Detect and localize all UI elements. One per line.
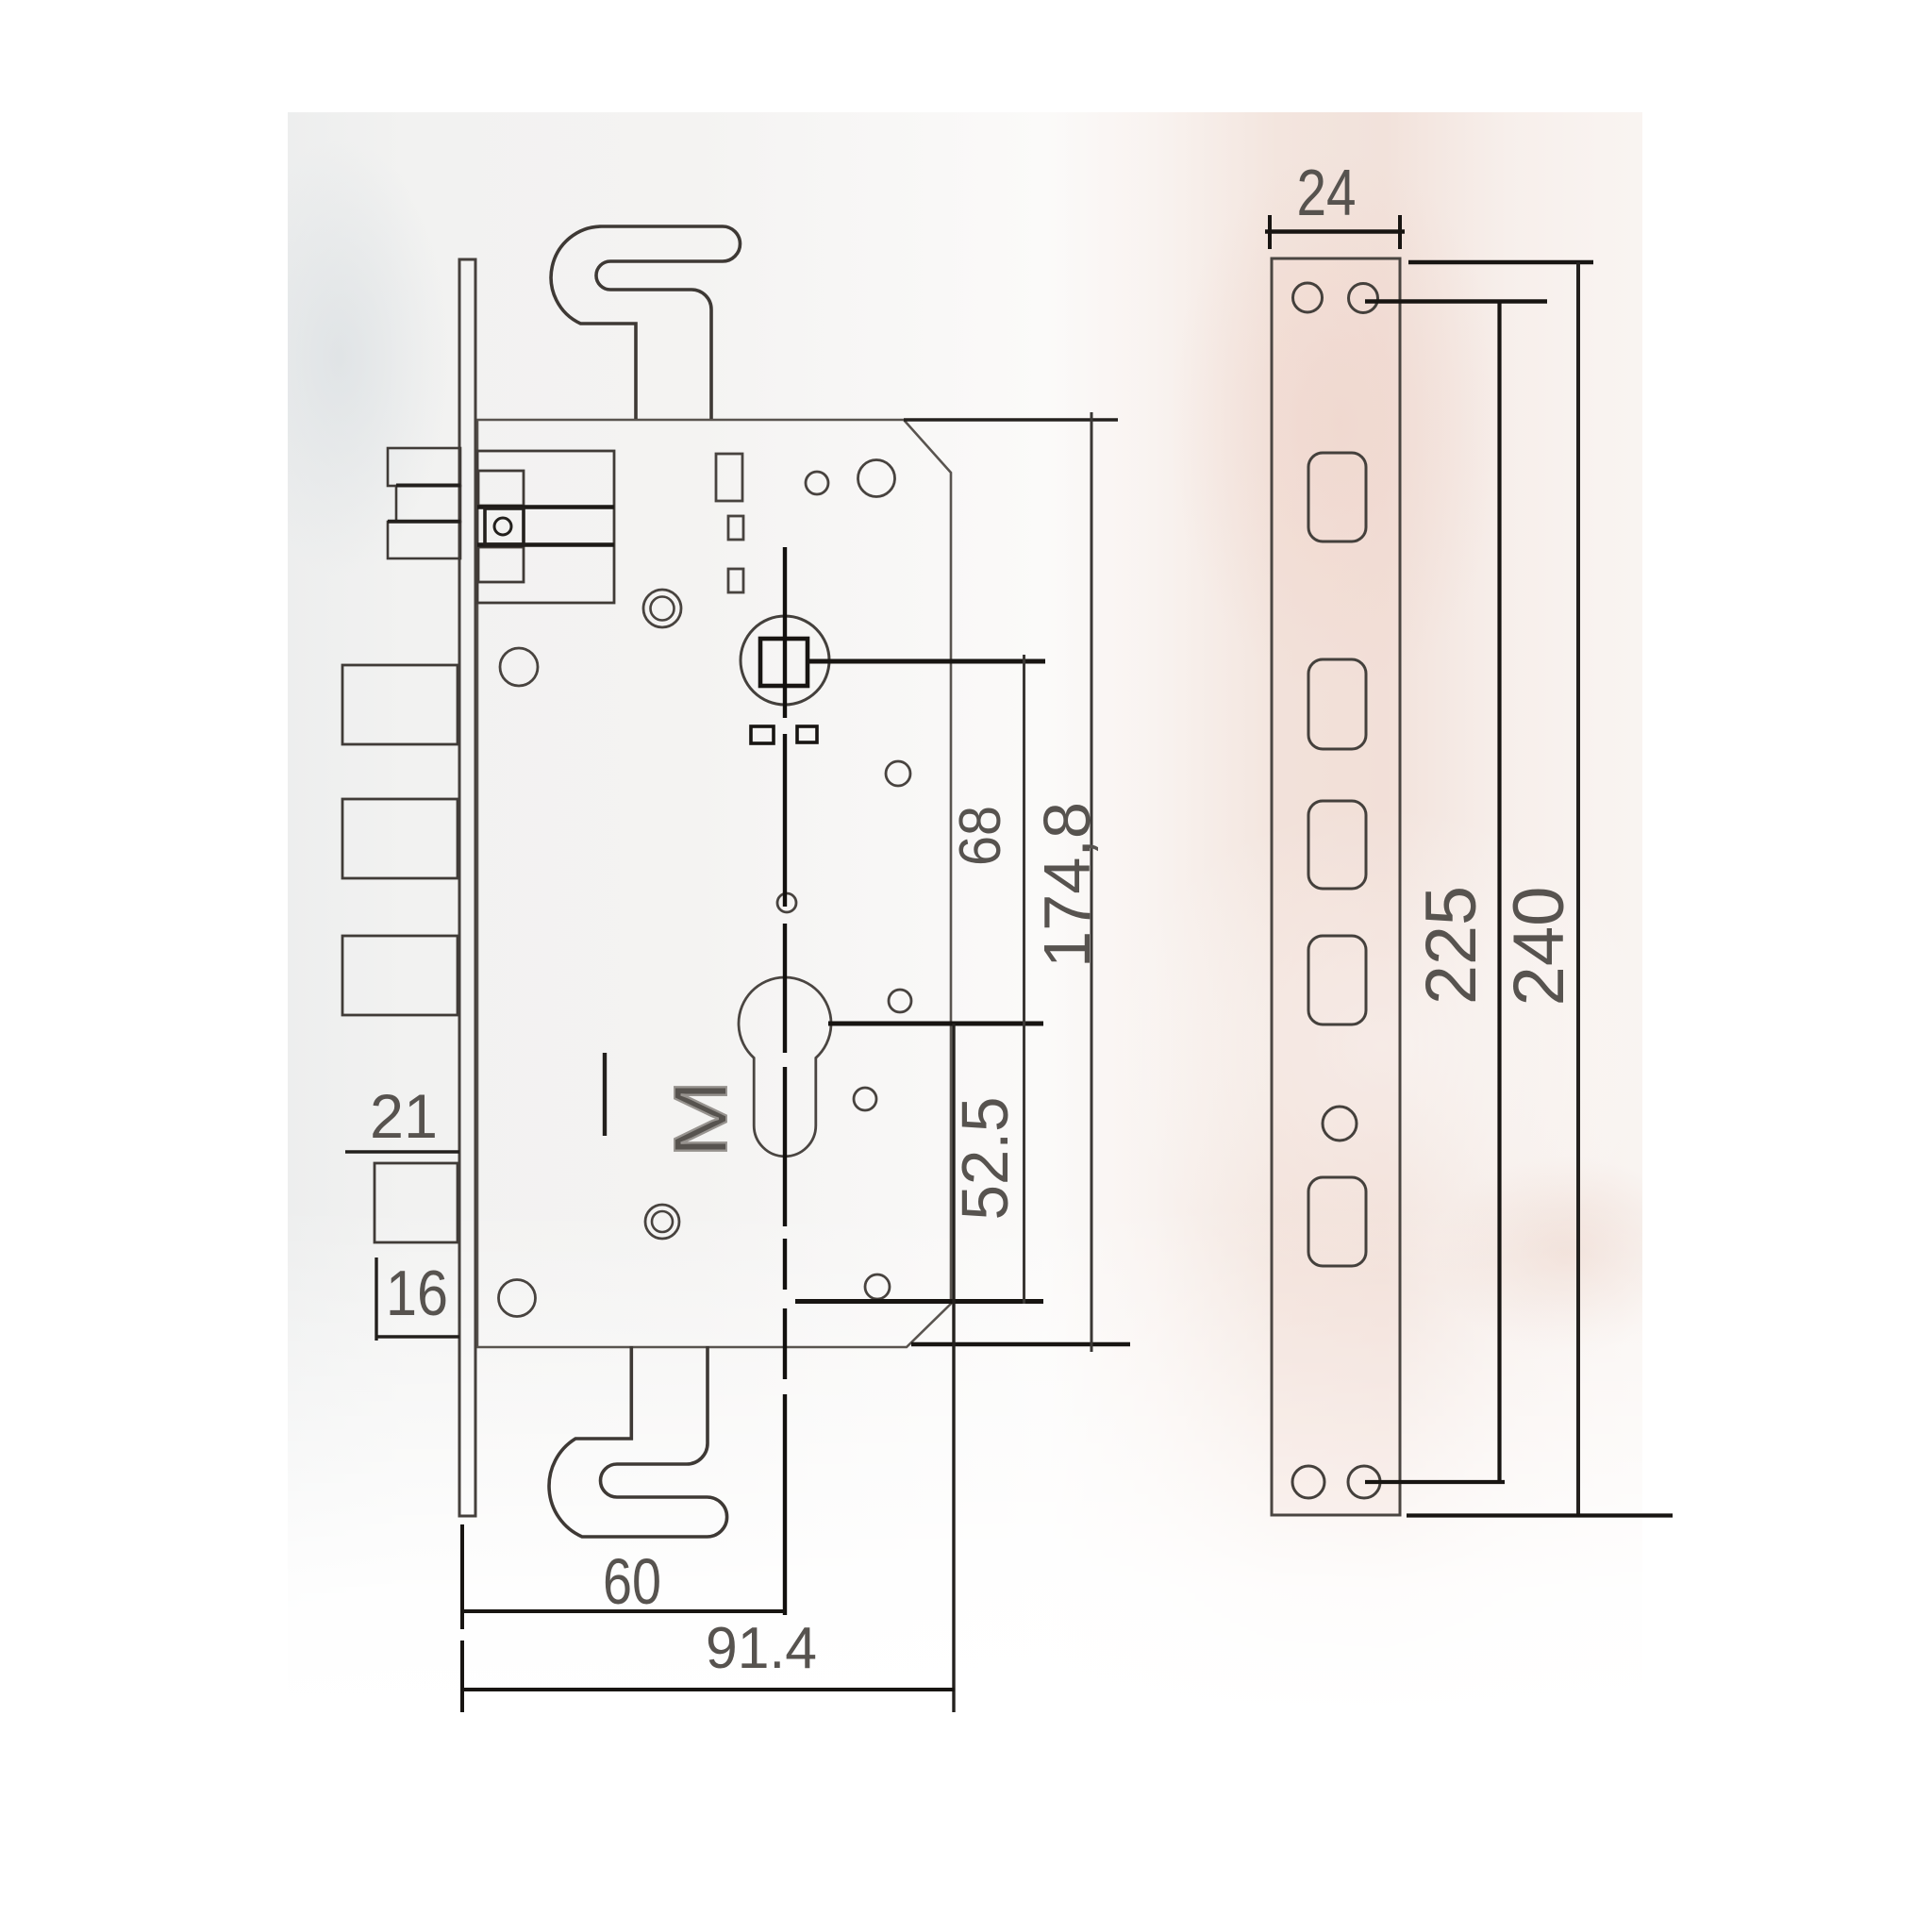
svg-text:52.5: 52.5 — [948, 1097, 1022, 1221]
svg-text:68: 68 — [948, 806, 1013, 866]
svg-text:24: 24 — [1297, 156, 1357, 229]
svg-text:16: 16 — [386, 1257, 448, 1329]
svg-text:60: 60 — [603, 1545, 661, 1618]
svg-text:M: M — [658, 1079, 742, 1158]
svg-text:21: 21 — [370, 1081, 438, 1151]
svg-text:225: 225 — [1411, 886, 1491, 1005]
svg-text:91.4: 91.4 — [706, 1616, 817, 1681]
svg-text:240: 240 — [1499, 887, 1579, 1007]
svg-text:174,8: 174,8 — [1030, 802, 1104, 968]
